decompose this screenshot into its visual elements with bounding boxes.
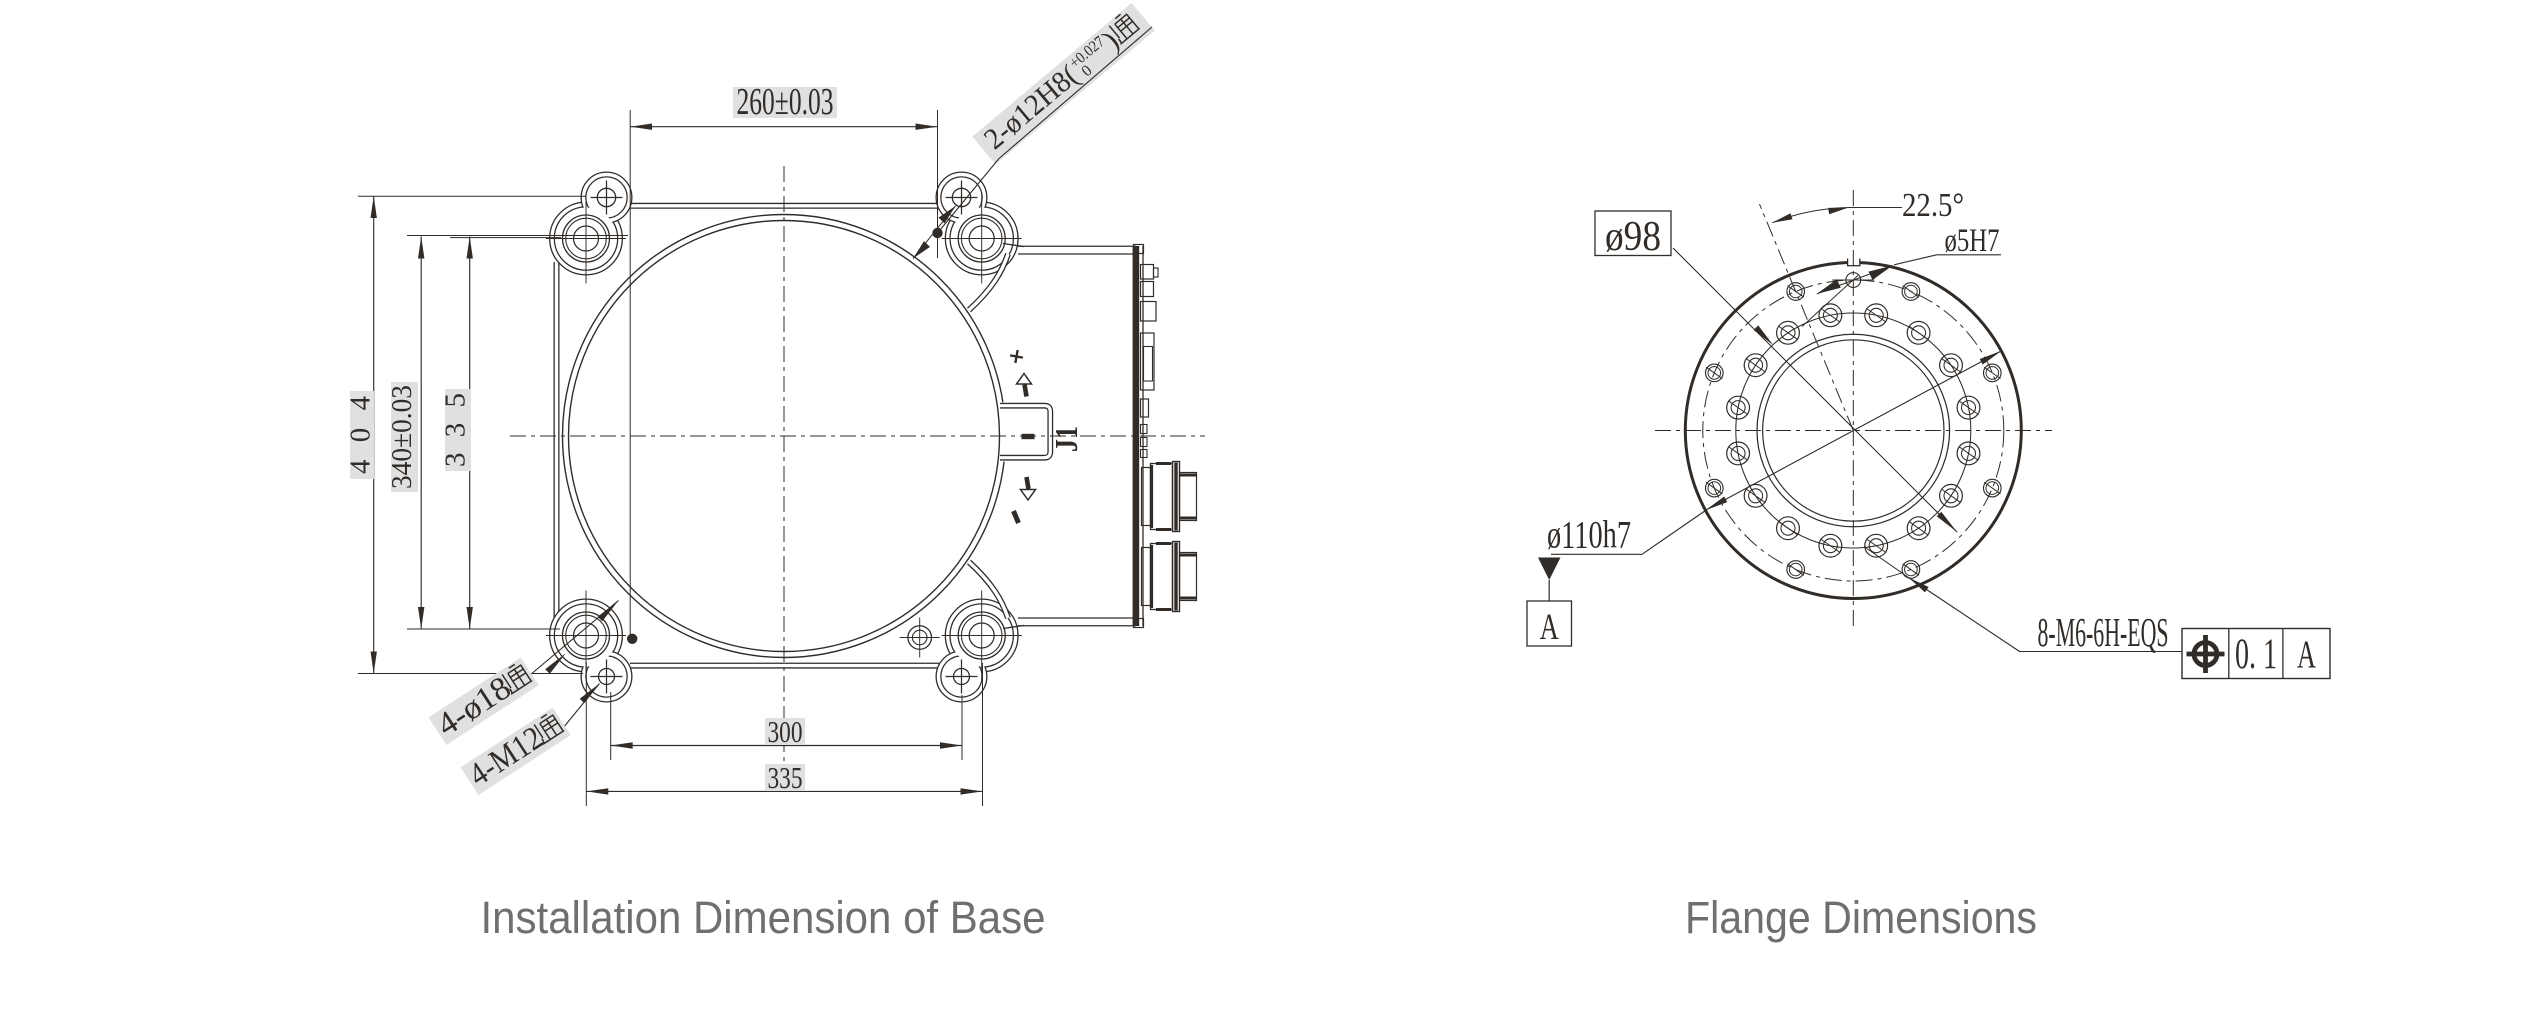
svg-text:22.5°: 22.5°: [1902, 187, 1964, 224]
svg-text:A: A: [2297, 633, 2316, 676]
svg-text:J1: J1: [1048, 426, 1084, 452]
svg-text:340±0.03: 340±0.03: [387, 385, 418, 489]
svg-text:8-M6-6H-EQS: 8-M6-6H-EQS: [2038, 609, 2169, 655]
svg-text:A: A: [1540, 607, 1559, 648]
svg-text:ø5H7: ø5H7: [1945, 223, 2000, 259]
svg-text:404: 404: [345, 396, 377, 475]
svg-text:300: 300: [768, 714, 803, 749]
svg-text:Flange Dimensions: Flange Dimensions: [1685, 892, 2037, 943]
svg-text:260±0.03: 260±0.03: [737, 81, 834, 123]
svg-text:Installation Dimension of Base: Installation Dimension of Base: [481, 892, 1046, 943]
svg-text:ø110h7: ø110h7: [1547, 514, 1631, 557]
svg-text:335: 335: [768, 760, 803, 795]
svg-text:0. 1: 0. 1: [2235, 631, 2277, 678]
svg-text:ø98: ø98: [1605, 214, 1661, 260]
svg-text:335: 335: [440, 393, 472, 467]
